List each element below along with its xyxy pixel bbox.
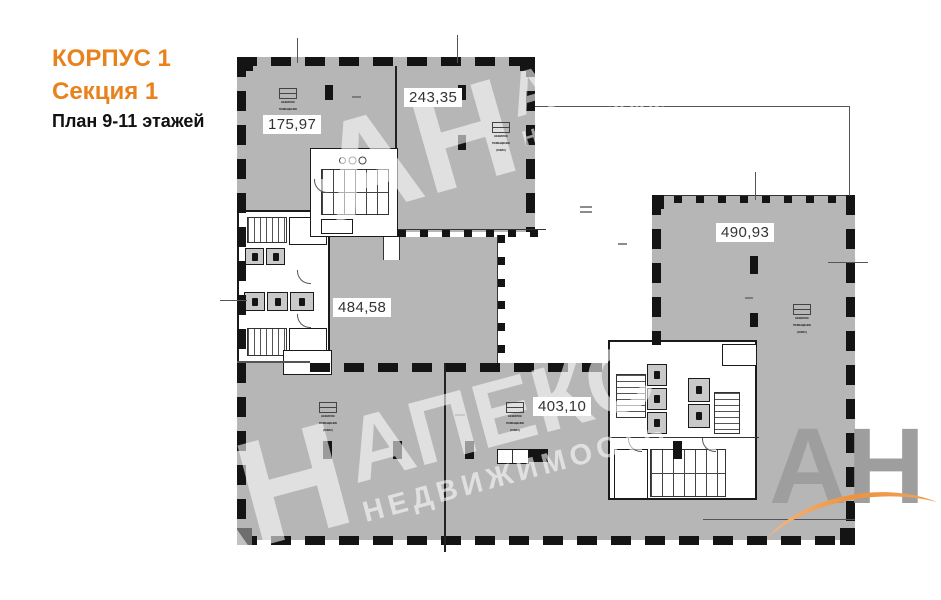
micro-note [455, 414, 465, 416]
elevator-shaft [647, 388, 667, 410]
dimension-line [703, 519, 855, 520]
column [458, 135, 466, 150]
staircase [247, 217, 287, 243]
watermark-subtitle: НЕДВИЖИМОСТЬ [520, 68, 739, 152]
furniture-block [497, 449, 529, 464]
area-label-490-93: 490,93 [716, 223, 774, 242]
wall [652, 195, 661, 345]
atrium-note [580, 206, 592, 208]
micro-note [745, 297, 753, 299]
building-title: КОРПУС 1 [52, 42, 204, 76]
tick-line [828, 262, 868, 263]
column [393, 441, 402, 459]
service-room [722, 344, 757, 366]
area-label-484-58: 484,58 [333, 298, 391, 317]
wall [237, 536, 855, 545]
wc-stalls [321, 169, 389, 215]
wall-corner [520, 57, 535, 71]
area-label-243-35: 243,35 [404, 88, 462, 107]
stamp-box [319, 402, 337, 413]
door-arc [297, 270, 311, 284]
column [673, 441, 682, 459]
wall-thin [395, 66, 397, 148]
door-arc [314, 179, 328, 193]
elevator-shaft [245, 248, 264, 265]
wall-corner [237, 528, 252, 545]
elevator-shaft [647, 364, 667, 386]
wall [652, 195, 855, 203]
core-1-wc [310, 148, 398, 237]
elevator-shaft [688, 404, 710, 428]
door-arc [297, 314, 311, 328]
sink-icons [339, 157, 346, 164]
elevator-shaft [290, 292, 314, 311]
wall [310, 363, 608, 372]
wc-stalls [650, 449, 726, 497]
elevator-shaft [267, 292, 288, 311]
title-block: КОРПУС 1 Секция 1 План 9-11 этажей [52, 42, 204, 135]
wall [846, 195, 855, 545]
watermark-name: АПЕКС [503, 9, 732, 126]
wall-thin [237, 361, 310, 363]
atrium-note [580, 211, 592, 213]
column [750, 256, 758, 274]
wall [237, 57, 535, 66]
stamp-box [492, 122, 510, 133]
column [465, 441, 474, 459]
wall-corner [237, 57, 253, 71]
area-label-175-97: 175,97 [263, 115, 321, 134]
micro-note [618, 243, 627, 245]
micro-note [352, 96, 361, 98]
tick-line [220, 300, 247, 301]
service-room [321, 219, 353, 234]
core-2 [608, 340, 757, 500]
unit-stamp: НЕЖИЛОЕ ПОМЕЩЕНИЕ (ОФИС) [471, 122, 531, 156]
zone-175-lower [237, 57, 310, 217]
elevator-shaft [647, 412, 667, 434]
elevator-shaft [266, 248, 285, 265]
wall-corner [846, 195, 855, 211]
site-boundary [535, 106, 850, 107]
area-label-403-10: 403,10 [533, 397, 591, 416]
tick-line [755, 172, 756, 200]
staircase [247, 328, 287, 356]
elevator-shaft [244, 292, 265, 311]
section-title: Секция 1 [52, 76, 204, 108]
stamp-box [506, 402, 524, 413]
stamp-box [793, 304, 811, 315]
corridor-notch [383, 237, 400, 260]
column [323, 441, 332, 459]
wall [237, 57, 246, 545]
wall-corner [840, 528, 855, 545]
unit-stamp: НЕЖИЛОЕ ПОМЕЩЕНИЕ (ОФИС) [772, 304, 832, 338]
divider-wall [444, 363, 446, 552]
tick-line [457, 35, 458, 63]
elevator-shaft [688, 378, 710, 402]
column [750, 313, 758, 327]
tick-line [297, 38, 298, 63]
column [325, 85, 333, 100]
service-room [614, 449, 648, 499]
staircase [616, 374, 646, 418]
wall-corner [652, 195, 664, 209]
staircase [714, 392, 740, 434]
floor-plan-page: КОРПУС 1 Секция 1 План 9-11 этажей [0, 0, 941, 600]
wall [497, 235, 505, 363]
wall [398, 229, 546, 237]
site-boundary [849, 106, 850, 196]
unit-stamp: НЕЖИЛОЕ ПОМЕЩЕНИЕ (ОФИС) [298, 402, 358, 436]
furniture-block-dark [529, 449, 548, 462]
floors-subtitle: План 9-11 этажей [52, 108, 204, 135]
stamp-box [279, 88, 297, 99]
